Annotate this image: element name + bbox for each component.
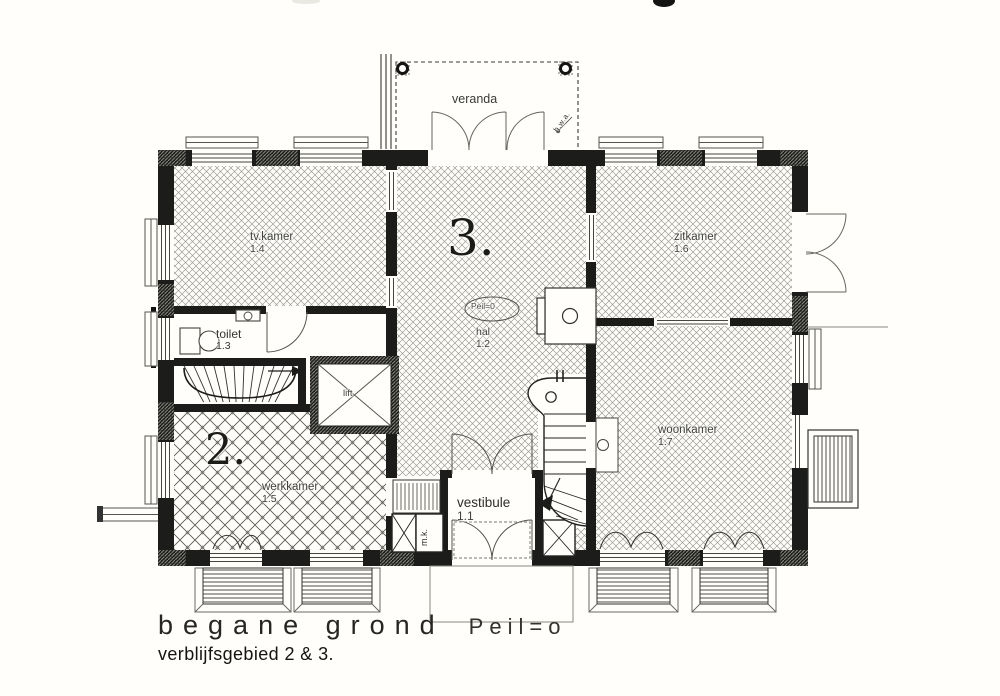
light-well [195,568,291,612]
stair-left-floor [174,362,300,406]
light-well [589,568,678,612]
light-well [294,568,380,612]
room-label-vestibule: vestibule 1.1 [457,495,510,524]
garden-wall-stub [381,54,391,149]
room-label-zitkamer: zitkamer 1.6 [674,231,717,256]
caption-subtitle: verblijfsgebied 2 & 3. [158,644,566,665]
room-label-tvkamer: tv.kamer 1.4 [250,231,293,256]
floorplan-drawing [0,0,1000,696]
peil-datum-label: Peil=0 [471,302,495,312]
room-label-werkkamer: werkkamer 1.5 [262,481,318,506]
caption-line1: begane grond Peil=o [158,610,566,641]
room-label-hal: hal 1.2 [476,327,490,350]
lift-shaft [310,356,399,434]
veranda-column [561,64,571,74]
zone-2-number: 2. [205,426,246,474]
lift-label: lift [343,389,353,400]
light-well [692,568,776,612]
drawing-caption: begane grond Peil=o verblijfsgebied 2 & … [158,610,566,665]
caption-level: Peil=o [469,614,567,640]
chimney-block [537,288,596,344]
exterior-steps-right [808,430,858,508]
scan-artifacts [292,0,675,7]
room-label-woonkamer: woonkamer 1.7 [658,424,717,449]
caption-title: begane grond [158,610,445,641]
veranda-column [398,64,408,74]
wardrobe [393,480,440,513]
veranda-label: veranda [452,92,497,106]
woonkamer-radiator-left [596,418,618,472]
floorplan-page: veranda h.w.a. 3. 2. tv.kamer 1.4 toilet… [0,0,1000,696]
garden-wall-left [97,506,158,522]
mk-closet-label: m.k. [419,529,429,546]
room-label-toilet: toilet 1.3 [216,328,241,353]
zone-3-number: 3. [447,210,495,266]
